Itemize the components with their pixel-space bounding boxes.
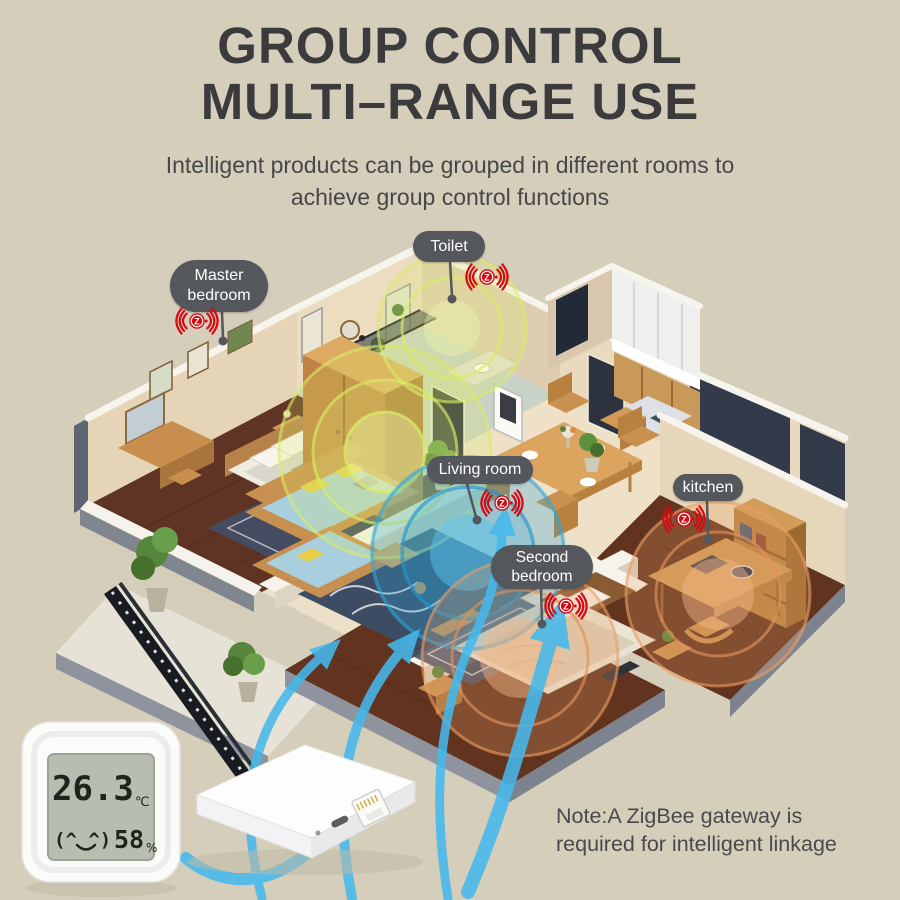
label-kitchen: kitchen [673,474,743,501]
title-line-1: GROUP CONTROL [0,18,900,74]
page-title: GROUP CONTROL MULTI–RANGE USE [0,18,900,130]
zigbee-letter: Z [484,272,490,282]
house-illustration: 26.3 ℃ (^ ^) 58 % [0,0,900,900]
zigbee-letter: Z [681,514,687,524]
subtitle-line-2: achieve group control functions [0,182,900,214]
label-text: bedroom [187,286,250,306]
reset-hole-icon [316,831,321,836]
zigbee-icon-kitchen: Z [656,505,712,533]
label-text: bedroom [511,567,572,586]
label-text: Living room [439,460,522,480]
label-text: Second [516,548,569,567]
zigbee-icon-master-bedroom: Z [169,307,225,335]
label-text: kitchen [683,478,734,498]
poster: 26.3 ℃ (^ ^) 58 % GROUP CONTROL MULTI–RA… [0,0,900,900]
subtitle-line-1: Intelligent products can be grouped in d… [0,150,900,182]
zigbee-letter: Z [499,498,505,508]
label-toilet: Toilet [413,231,485,262]
humidity-value: 58 [114,825,144,854]
label-living-room: Living room [427,456,533,484]
title-line-2: MULTI–RANGE USE [0,74,900,130]
label-second-bedroom: Second bedroom [491,545,593,589]
note-line-2: required for intelligent linkage [556,830,837,858]
temperature-value: 26.3 [52,769,134,809]
zigbee-letter: Z [194,316,200,326]
page-subtitle: Intelligent products can be grouped in d… [0,150,900,213]
gateway-note: Note:A ZigBee gateway is required for in… [556,802,837,859]
zigbee-icon-living-room: Z [474,489,530,517]
label-master-bedroom: Master bedroom [170,260,268,312]
temperature-unit: ℃ [135,795,150,810]
gateway-device [187,745,423,875]
zigbee-letter: Z [563,601,569,611]
sensor-device: 26.3 ℃ (^ ^) 58 % [22,722,180,897]
note-line-1: Note:A ZigBee gateway is [556,802,837,830]
signal-kitchen [626,502,810,686]
zigbee-icon-second-bedroom: Z [538,592,594,620]
humidity-unit: % [146,841,157,855]
label-text: Master [195,266,244,286]
zigbee-icon-toilet: Z [459,263,515,291]
label-text: Toilet [430,237,467,257]
